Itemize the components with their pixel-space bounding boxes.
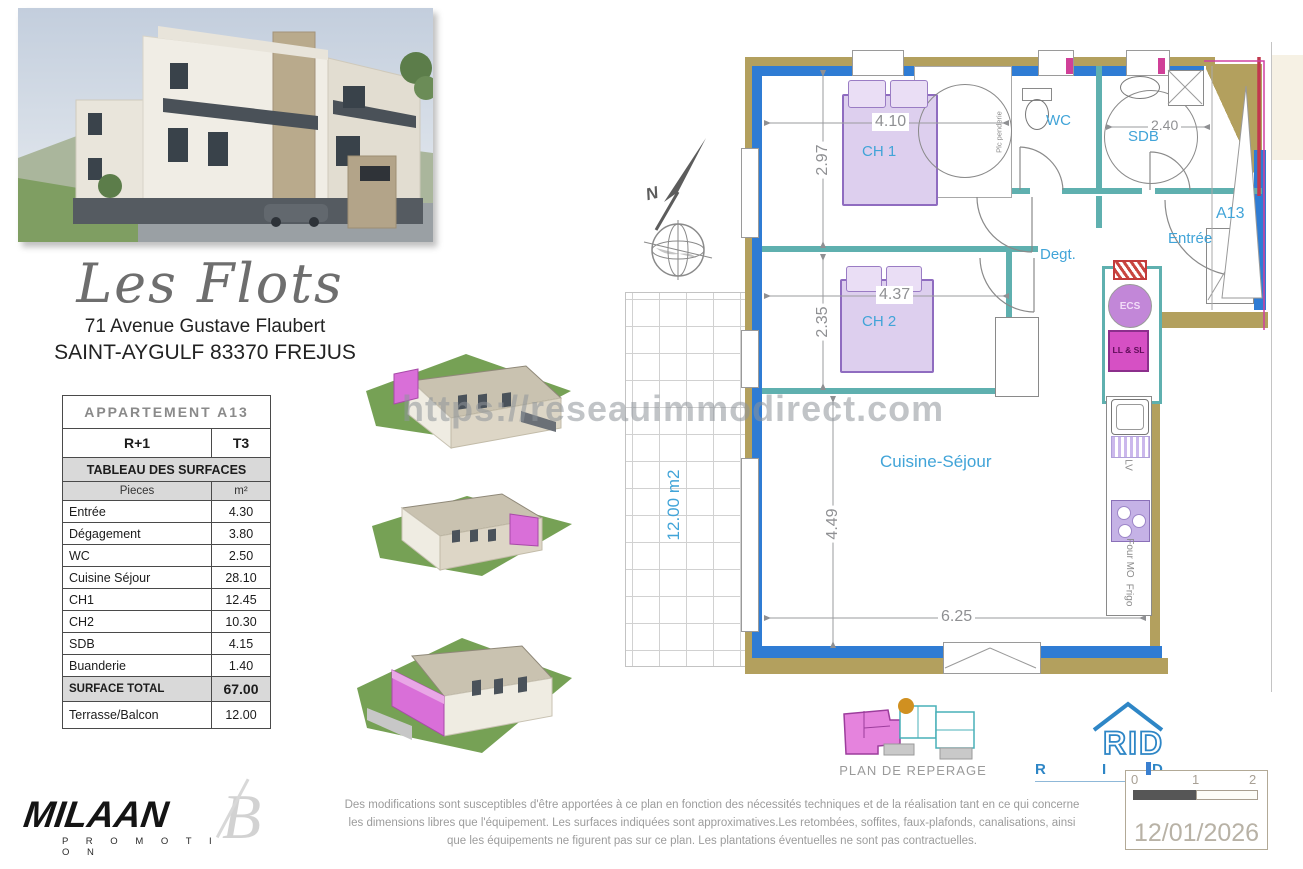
oven-label: Four MO bbox=[1123, 535, 1135, 581]
compass-icon bbox=[606, 130, 746, 280]
dim-ch2-height: 2.35 bbox=[814, 303, 832, 340]
plan-date: 12/01/2026 bbox=[1125, 817, 1268, 850]
burner bbox=[1132, 514, 1146, 528]
window-ch1-top bbox=[852, 50, 904, 76]
dim-ch2-width: 4.37 bbox=[876, 286, 913, 304]
room-label: CH1 bbox=[63, 589, 212, 611]
terrace-label: Terrasse/Balcon bbox=[63, 702, 212, 729]
room-label: Dégagement bbox=[63, 523, 212, 545]
room-label: CH2 bbox=[63, 611, 212, 633]
site-outline bbox=[1271, 42, 1272, 692]
table-row: CH1 12.45 bbox=[63, 589, 271, 611]
type-cell: T3 bbox=[212, 429, 271, 458]
scale-tick-2: 2 bbox=[1249, 772, 1256, 787]
disclaimer: Des modifications sont susceptibles d'êt… bbox=[292, 797, 1132, 850]
scale-tick-1: 1 bbox=[1192, 772, 1199, 787]
dim-sejour-height: 4.49 bbox=[824, 505, 842, 542]
ch1-closet-label: Plc penderie bbox=[995, 111, 1004, 153]
radiator bbox=[1113, 260, 1147, 280]
room-area: 4.30 bbox=[212, 501, 271, 523]
water-heater-ecs: ECS bbox=[1108, 284, 1152, 328]
fridge-label: Frigo bbox=[1124, 584, 1135, 607]
table-row: Entrée 4.30 bbox=[63, 501, 271, 523]
rid-logo: RID bbox=[1088, 698, 1168, 760]
room-label: WC bbox=[63, 545, 212, 567]
disclaimer-line: les dimensions libres que l'équipement. … bbox=[292, 815, 1132, 833]
building-photo-art bbox=[18, 8, 433, 242]
cuisine-sejour-label: Cuisine-Séjour bbox=[880, 452, 992, 472]
col-area-header: m² bbox=[212, 482, 271, 501]
rid-logo-text: RID bbox=[1103, 725, 1164, 760]
window-ch2-left bbox=[741, 330, 759, 388]
terrace-value: 12.00 bbox=[212, 702, 271, 729]
room-area: 3.80 bbox=[212, 523, 271, 545]
promoter-name: MILAAN bbox=[21, 794, 227, 836]
unit-number-label: A13 bbox=[1216, 205, 1244, 223]
kitchen-sink bbox=[1111, 399, 1149, 435]
ch1-label: CH 1 bbox=[862, 143, 896, 160]
rid-letter-r: R bbox=[1035, 761, 1046, 778]
room-area: 2.50 bbox=[212, 545, 271, 567]
watermark-url: https://reseauimmodirect.com bbox=[402, 388, 944, 430]
disclaimer-line: que les équipements ne figurent pas sur … bbox=[292, 833, 1132, 851]
table-row-total: SURFACE TOTAL 67.00 bbox=[63, 677, 271, 702]
window-sejour-bottom bbox=[943, 642, 1041, 674]
col-room-header: Pieces bbox=[63, 482, 212, 501]
surface-table: APPARTEMENT A13 R+1 T3 TABLEAU DES SURFA… bbox=[62, 395, 271, 729]
degt-label: Degt. bbox=[1040, 246, 1076, 263]
scale-blue-tick bbox=[1146, 762, 1151, 775]
rid-letter-i: I bbox=[1102, 761, 1106, 778]
building-photo bbox=[18, 8, 433, 242]
window-ch1-left bbox=[741, 148, 759, 238]
project-address-line2: SAINT-AYGULF 83370 FREJUS bbox=[25, 341, 385, 365]
total-value: 67.00 bbox=[212, 677, 271, 702]
sdb-shower bbox=[1168, 70, 1204, 106]
room-area: 4.15 bbox=[212, 633, 271, 655]
partition-ch1-ch2 bbox=[762, 246, 1038, 252]
disclaimer-line: Des modifications sont susceptibles d'êt… bbox=[292, 797, 1132, 815]
sink-drainer bbox=[1111, 436, 1150, 458]
table-row: Buanderie 1.40 bbox=[63, 655, 271, 677]
wall-entry-right-blue bbox=[1254, 150, 1266, 310]
table-row: CH2 10.30 bbox=[63, 611, 271, 633]
burner bbox=[1117, 506, 1131, 520]
terrace-area-label: 12.00 m2 bbox=[664, 470, 684, 541]
ch2-label: CH 2 bbox=[862, 313, 896, 330]
washer-dryer: LL & SL bbox=[1108, 330, 1149, 372]
sdb-basin bbox=[1120, 76, 1160, 99]
partition-wc-sdb bbox=[1096, 66, 1102, 188]
scale-bar-empty bbox=[1196, 790, 1258, 800]
entry-closet bbox=[1206, 228, 1254, 304]
partition-wc-wall-a bbox=[1012, 188, 1030, 194]
room-area: 28.10 bbox=[212, 567, 271, 589]
render-3d-middle bbox=[372, 466, 572, 586]
partition-wc-wall-b bbox=[1062, 188, 1142, 194]
room-label: SDB bbox=[63, 633, 212, 655]
partition-sdb-wall bbox=[1155, 188, 1262, 194]
table-row: WC 2.50 bbox=[63, 545, 271, 567]
dim-sejour-width: 6.25 bbox=[938, 608, 975, 626]
render-3d-bottom bbox=[352, 608, 577, 766]
room-area: 10.30 bbox=[212, 611, 271, 633]
ch1-pillow-left bbox=[848, 80, 886, 108]
scale-tick-0: 0 bbox=[1131, 772, 1138, 787]
ch1-pillow-right bbox=[890, 80, 928, 108]
scale-bar-filled bbox=[1133, 790, 1196, 800]
total-label: SURFACE TOTAL bbox=[63, 677, 212, 702]
room-label: Cuisine Séjour bbox=[63, 567, 212, 589]
promoter-logo: MILAAN P R O M O T I O N bbox=[24, 794, 224, 858]
surface-table-section: TABLEAU DES SURFACES bbox=[63, 458, 271, 482]
dishwasher-label: LV bbox=[1123, 459, 1134, 471]
entree-label: Entrée bbox=[1168, 230, 1212, 247]
dim-ch1-height: 2.97 bbox=[814, 141, 832, 178]
partition-degt-entree bbox=[1096, 196, 1102, 228]
table-row: SDB 4.15 bbox=[63, 633, 271, 655]
terrace-tiles bbox=[625, 292, 747, 667]
room-area: 1.40 bbox=[212, 655, 271, 677]
door-frame-mark-1 bbox=[1066, 58, 1073, 74]
room-area: 12.45 bbox=[212, 589, 271, 611]
table-row: Cuisine Séjour 28.10 bbox=[63, 567, 271, 589]
surface-table-title: APPARTEMENT A13 bbox=[63, 396, 271, 429]
margin-strip bbox=[1272, 55, 1303, 160]
room-label: Entrée bbox=[63, 501, 212, 523]
sdb-label: SDB bbox=[1128, 128, 1159, 145]
reperage-caption: PLAN DE REPERAGE bbox=[833, 763, 993, 778]
reperage-minimap bbox=[840, 698, 980, 762]
floor-cell: R+1 bbox=[63, 429, 212, 458]
project-address-line1: 71 Avenue Gustave Flaubert bbox=[40, 316, 370, 338]
table-row: Dégagement 3.80 bbox=[63, 523, 271, 545]
wc-label: WC bbox=[1046, 112, 1071, 129]
dim-ch1-width: 4.10 bbox=[872, 113, 909, 131]
brochure-page: Les Flots 71 Avenue Gustave Flaubert SAI… bbox=[0, 0, 1303, 869]
window-sejour-left bbox=[741, 458, 759, 632]
architect-logo: B bbox=[222, 780, 302, 862]
door-frame-mark-2 bbox=[1158, 58, 1165, 74]
promoter-subtitle: P R O M O T I O N bbox=[24, 836, 224, 858]
wall-right-step-tan bbox=[1158, 312, 1268, 328]
room-label: Buanderie bbox=[63, 655, 212, 677]
table-row-terrace: Terrasse/Balcon 12.00 bbox=[63, 702, 271, 729]
project-title: Les Flots bbox=[60, 252, 360, 315]
ch2-closet bbox=[995, 317, 1039, 397]
